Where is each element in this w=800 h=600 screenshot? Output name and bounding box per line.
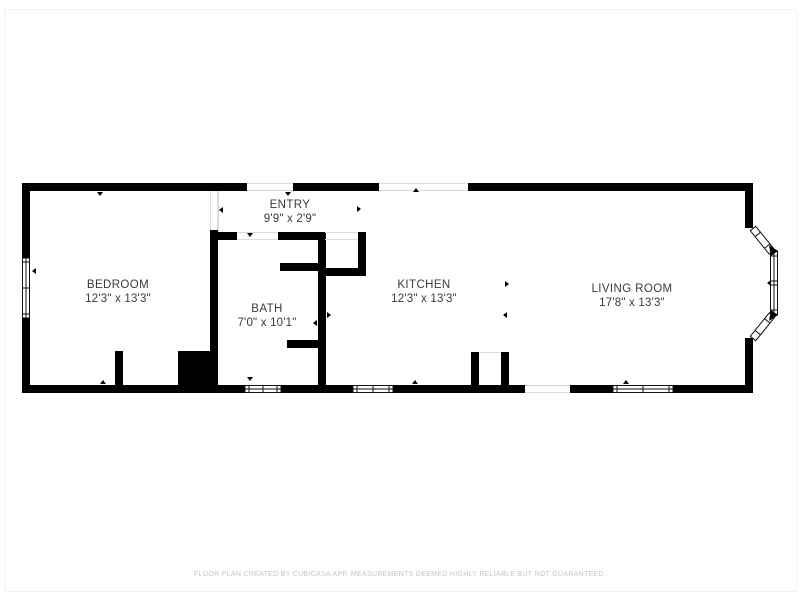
bath-door-opening — [237, 233, 278, 240]
room-label-entry: ENTRY 9'9" x 2'9" — [264, 198, 316, 226]
room-name-kitchen: KITCHEN — [391, 278, 457, 292]
room-dimensions-bath: 7'0" x 10'1" — [237, 316, 296, 330]
tick-bath-wall-left — [313, 320, 317, 326]
wall-entry-right-horizontal — [326, 268, 366, 276]
wall-right-lower — [745, 338, 753, 393]
room-dimensions-bedroom: 12'3" x 13'3" — [85, 292, 151, 306]
tick-bay-window — [767, 280, 771, 286]
room-label-bedroom: BEDROOM 12'3" x 13'3" — [85, 278, 151, 306]
tick-kitchen-living-b — [503, 312, 507, 318]
tick-bath-window — [247, 377, 253, 381]
room-name-living-room: LIVING ROOM — [591, 282, 672, 296]
wall-top-right — [468, 183, 753, 191]
wall-entry-divider-left — [210, 232, 237, 240]
tick-bottom-kitchen — [412, 380, 418, 384]
wall-bath-closet-stub — [280, 263, 326, 271]
tick-bottom-bedroom — [100, 380, 106, 384]
room-label-living-room: LIVING ROOM 17'8" x 13'3" — [591, 282, 672, 310]
room-name-bedroom: BEDROOM — [85, 278, 151, 292]
wall-top-middle — [293, 183, 379, 191]
entry-kitchen-opening — [325, 233, 358, 240]
wall-kitchen-niche-right — [501, 352, 509, 385]
tick-bath-door — [247, 233, 253, 237]
tick-top-bedroom — [97, 192, 103, 196]
room-label-kitchen: KITCHEN 12'3" x 13'3" — [391, 278, 457, 306]
room-name-bath: BATH — [237, 302, 296, 316]
bedroom-door-opening — [211, 191, 218, 230]
tick-bedroom-window — [32, 268, 36, 274]
tick-bottom-living — [623, 380, 629, 384]
floorplan-canvas: BEDROOM 12'3" x 13'3" ENTRY 9'9" x 2'9" … — [0, 0, 800, 600]
front-door-opening — [247, 184, 293, 191]
top-wide-opening — [379, 184, 468, 191]
wall-right-upper — [745, 183, 753, 228]
room-name-entry: ENTRY — [264, 198, 316, 212]
wall-kitchen-niche-left — [471, 352, 479, 385]
bedroom-window — [23, 258, 30, 318]
room-label-bath: BATH 7'0" x 10'1" — [237, 302, 296, 330]
wall-bedroom-closet-stub — [115, 351, 123, 385]
tick-front-door — [285, 192, 291, 196]
tick-kitchen-living-a — [505, 281, 509, 287]
back-door-opening — [525, 386, 570, 393]
wall-bath-right — [318, 232, 326, 393]
tick-bedroom-door — [219, 207, 223, 213]
room-dimensions-living-room: 17'8" x 13'3" — [591, 296, 672, 310]
tick-entry-kitchen — [357, 206, 361, 212]
living-room-window — [613, 386, 673, 393]
bath-window — [245, 386, 281, 393]
wall-bath-shower-stub — [287, 340, 326, 348]
wall-entry-divider-right — [278, 232, 325, 240]
bay-window — [750, 226, 778, 340]
footer-disclaimer: FLOOR PLAN CREATED BY CUBICASA APP. MEAS… — [0, 571, 800, 578]
kitchen-window — [353, 386, 393, 393]
wall-top-left — [22, 183, 247, 191]
room-dimensions-kitchen: 12'3" x 13'3" — [391, 292, 457, 306]
interior-walls — [115, 230, 509, 393]
room-dimensions-entry: 9'9" x 2'9" — [264, 212, 316, 226]
utility-chase-box — [178, 351, 218, 385]
tick-bath-wall-right — [327, 312, 331, 318]
